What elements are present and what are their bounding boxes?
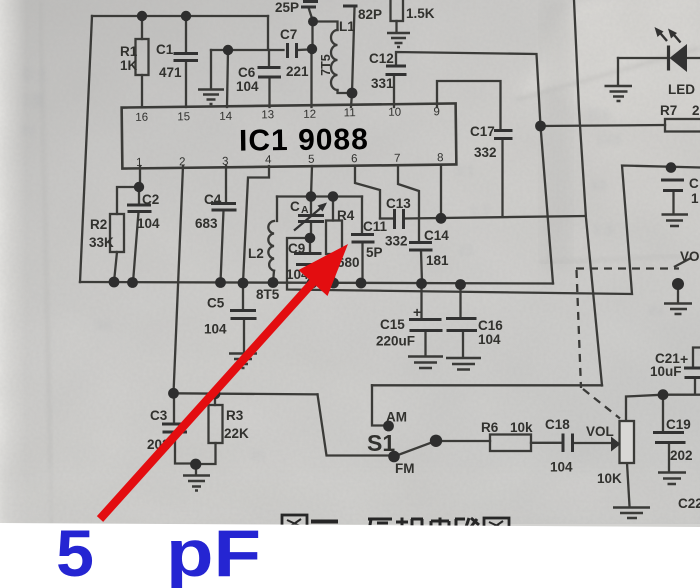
svg-text:C18: C18: [545, 417, 570, 432]
svg-text:332: 332: [474, 145, 497, 160]
svg-text:7T5: 7T5: [319, 54, 333, 76]
svg-text:R7: R7: [660, 103, 677, 118]
svg-text:8: 8: [437, 152, 444, 164]
svg-text:AM: AM: [386, 410, 407, 425]
svg-text:R1: R1: [120, 44, 138, 59]
svg-text:10uF: 10uF: [650, 364, 682, 379]
svg-text:C19: C19: [666, 417, 691, 432]
svg-text:1.5K: 1.5K: [406, 6, 435, 21]
svg-text:4: 4: [265, 154, 272, 166]
svg-text:3: 3: [222, 156, 229, 168]
svg-text:C14: C14: [424, 228, 449, 243]
svg-text:1K: 1K: [120, 58, 138, 73]
svg-text:C16: C16: [478, 318, 503, 333]
svg-text:R4: R4: [337, 208, 355, 223]
svg-text:R3: R3: [226, 408, 244, 423]
svg-text:10: 10: [388, 107, 401, 119]
svg-text:33K: 33K: [89, 235, 114, 250]
svg-text:15: 15: [177, 111, 190, 123]
svg-text:C: C: [290, 199, 300, 214]
svg-text:12: 12: [303, 109, 316, 121]
svg-text:FM: FM: [395, 461, 415, 476]
svg-text:331: 331: [371, 76, 394, 91]
svg-text:104: 104: [478, 332, 501, 347]
svg-text:C5: C5: [207, 296, 225, 311]
svg-text:8T5: 8T5: [256, 287, 280, 302]
svg-text:L1: L1: [339, 19, 355, 34]
svg-text:10k: 10k: [510, 420, 533, 435]
svg-text:C3: C3: [150, 408, 168, 423]
svg-text:C: C: [689, 176, 699, 191]
svg-text:C12: C12: [369, 51, 394, 66]
svg-text:9: 9: [433, 106, 440, 118]
svg-text:5P: 5P: [366, 245, 383, 260]
svg-text:82P: 82P: [358, 7, 382, 22]
svg-text:202: 202: [670, 448, 693, 463]
svg-text:683: 683: [195, 216, 218, 231]
svg-text:471: 471: [159, 65, 182, 80]
svg-text:C6: C6: [238, 65, 256, 80]
svg-text:25P: 25P: [275, 0, 299, 15]
svg-text:104: 104: [204, 322, 227, 337]
svg-text:221: 221: [286, 64, 309, 79]
svg-text:C22: C22: [678, 496, 700, 511]
svg-text:LED: LED: [668, 82, 695, 97]
svg-text:R2: R2: [90, 217, 107, 232]
svg-text:1: 1: [691, 191, 699, 206]
svg-text:+: +: [413, 304, 421, 320]
svg-text:16: 16: [135, 112, 148, 124]
svg-text:VOL: VOL: [680, 249, 700, 264]
svg-text:7: 7: [394, 153, 401, 165]
svg-text:22K: 22K: [224, 426, 249, 441]
svg-text:C1: C1: [156, 42, 174, 57]
svg-text:332: 332: [385, 234, 408, 249]
svg-text:IC1 9088: IC1 9088: [239, 123, 369, 158]
svg-text:S1: S1: [367, 430, 395, 456]
svg-text:A: A: [301, 204, 309, 216]
svg-text:C13: C13: [386, 196, 411, 211]
svg-text:14: 14: [219, 111, 233, 123]
svg-text:2: 2: [692, 103, 700, 118]
svg-text:L2: L2: [248, 246, 264, 261]
svg-text:220uF: 220uF: [376, 334, 415, 349]
svg-text:C11: C11: [363, 219, 388, 234]
svg-text:104: 104: [236, 79, 259, 94]
svg-text:VOL: VOL: [586, 424, 614, 439]
svg-text:13: 13: [261, 109, 274, 121]
svg-text:C7: C7: [280, 27, 297, 42]
svg-text:C17: C17: [470, 124, 495, 139]
svg-text:2: 2: [179, 156, 186, 168]
svg-text:104: 104: [137, 216, 160, 231]
svg-text:C2: C2: [142, 192, 159, 207]
svg-text:10K: 10K: [597, 471, 622, 486]
svg-text:pF: pF: [166, 516, 261, 588]
svg-text:C15: C15: [380, 317, 405, 332]
svg-text:11: 11: [344, 107, 356, 119]
svg-text:5: 5: [56, 516, 94, 588]
svg-text:R6: R6: [481, 420, 499, 435]
svg-text:1: 1: [136, 157, 143, 169]
svg-text:6: 6: [351, 153, 358, 165]
svg-text:104: 104: [550, 460, 573, 475]
svg-text:181: 181: [426, 253, 449, 268]
svg-text:C9: C9: [288, 241, 305, 256]
svg-text:C4: C4: [204, 192, 222, 207]
svg-text:5: 5: [308, 154, 315, 166]
